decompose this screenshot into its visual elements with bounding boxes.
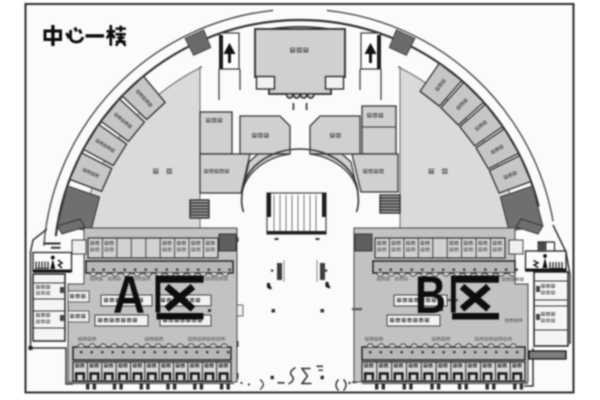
svg-text:B: B: [415, 266, 446, 325]
svg-text:A: A: [113, 266, 145, 325]
